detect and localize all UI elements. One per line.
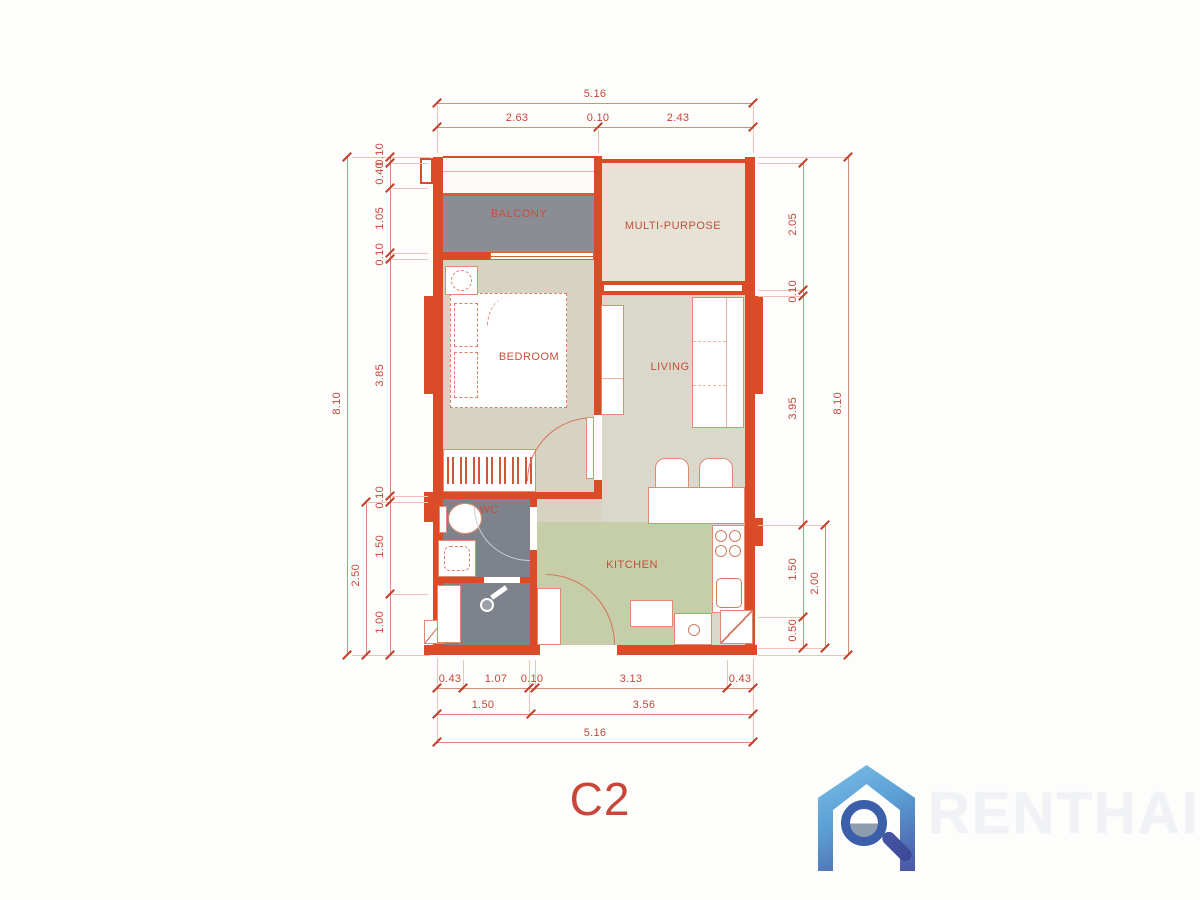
dim-label: 0.43 bbox=[723, 673, 757, 685]
stove-burner bbox=[715, 530, 727, 542]
wall-multi-top bbox=[601, 159, 745, 163]
extension-line bbox=[392, 259, 428, 260]
hanger-icon bbox=[512, 457, 519, 484]
sofa-cushion-line bbox=[693, 385, 726, 386]
wall-balcony-multi-divider bbox=[594, 156, 602, 295]
extension-line bbox=[437, 105, 438, 153]
dimension-line bbox=[437, 714, 753, 715]
dimension-line bbox=[437, 742, 753, 743]
shower-door-slot bbox=[484, 577, 520, 583]
hanger-icon bbox=[499, 457, 506, 484]
ac-ledge bbox=[720, 610, 753, 644]
room-label-bedroom: BEDROOM bbox=[479, 351, 579, 363]
dim-label: 0.40 bbox=[374, 162, 386, 185]
room-label-kitchen: KITCHEN bbox=[582, 559, 682, 571]
dim-label: 0.10 bbox=[581, 112, 615, 124]
stove-burner bbox=[715, 545, 727, 557]
dim-label: 8.10 bbox=[331, 392, 343, 415]
kitchen-cabinet-bottom bbox=[674, 613, 712, 645]
dining-table bbox=[648, 487, 745, 524]
logo-magnifier-icon bbox=[841, 800, 887, 846]
extension-line bbox=[753, 105, 754, 153]
extension-line bbox=[392, 496, 428, 497]
dimension-line bbox=[366, 502, 367, 655]
hanger-icon bbox=[473, 457, 480, 484]
dim-label: 1.50 bbox=[787, 558, 799, 581]
dim-label: 0.10 bbox=[374, 243, 386, 266]
pillow bbox=[454, 303, 478, 347]
stove-burner bbox=[729, 545, 741, 557]
wall-bedroom-bottom bbox=[433, 492, 602, 499]
dim-label: 8.10 bbox=[832, 392, 844, 415]
dim-label: 1.50 bbox=[466, 699, 500, 711]
room-label-multi-purpose: MULTI-PURPOSE bbox=[603, 220, 743, 232]
extension-line bbox=[598, 130, 599, 153]
wall-bottom-left bbox=[424, 645, 540, 655]
wall-left-column-upper bbox=[424, 296, 433, 394]
wall-top-notch bbox=[420, 158, 433, 184]
kitchen-sink bbox=[716, 578, 742, 608]
hanger-icon bbox=[460, 457, 467, 484]
extension-line bbox=[758, 163, 801, 164]
extension-line bbox=[392, 594, 428, 595]
dimension-line bbox=[390, 157, 391, 655]
extension-line bbox=[392, 163, 428, 164]
dimension-line bbox=[848, 157, 849, 655]
dim-label: 0.10 bbox=[787, 280, 799, 303]
hanger-icon bbox=[447, 457, 454, 484]
balcony-railing bbox=[443, 156, 595, 196]
extension-line bbox=[437, 658, 438, 744]
dim-label: 5.16 bbox=[578, 88, 612, 100]
dim-label: 1.07 bbox=[479, 673, 513, 685]
dim-label: 2.43 bbox=[661, 112, 695, 124]
wall-bottom-right bbox=[617, 645, 757, 655]
extension-line bbox=[758, 525, 823, 526]
sink-basin bbox=[444, 546, 470, 571]
extension-line bbox=[392, 253, 428, 254]
vanity-sink bbox=[438, 540, 476, 577]
balcony-floor bbox=[443, 196, 595, 252]
multi-sliding-window bbox=[604, 285, 742, 291]
dim-label: 1.50 bbox=[374, 535, 386, 558]
wall-right-column-lower bbox=[755, 518, 763, 546]
balcony-sliding-door bbox=[490, 252, 594, 260]
tv-cabinet-shelf-line bbox=[602, 378, 623, 379]
extension-line bbox=[753, 658, 754, 744]
dimension-line bbox=[347, 157, 348, 655]
extension-line bbox=[758, 617, 801, 618]
dim-label: 3.85 bbox=[374, 364, 386, 387]
shower-head-icon bbox=[480, 598, 494, 612]
toilet-tank bbox=[439, 506, 447, 533]
room-label-living: LIVING bbox=[620, 361, 720, 373]
pillow bbox=[454, 352, 478, 398]
extension-line bbox=[758, 655, 846, 656]
dimension-line bbox=[825, 525, 826, 648]
dim-label: 0.43 bbox=[433, 673, 467, 685]
washer-cabinet bbox=[437, 585, 461, 643]
unit-label: C2 bbox=[555, 772, 645, 826]
sofa-cushion-line bbox=[693, 341, 726, 342]
sliding-door-line bbox=[491, 256, 593, 257]
dimension-line bbox=[437, 103, 753, 104]
logo-brand-text: RENTHAI bbox=[928, 780, 1200, 847]
dim-label: 5.16 bbox=[578, 727, 612, 739]
dim-label: 3.13 bbox=[614, 673, 648, 685]
dim-label: 0.10 bbox=[515, 673, 549, 685]
dim-label: 3.56 bbox=[627, 699, 661, 711]
dimension-line bbox=[803, 163, 804, 648]
dim-label: 3.95 bbox=[787, 397, 799, 420]
hanger-icon bbox=[486, 457, 493, 484]
railing-line bbox=[443, 171, 595, 172]
kitchen-counter-bottom bbox=[630, 600, 673, 627]
wall-right bbox=[745, 157, 755, 655]
renthai-logo: RENTHAI bbox=[815, 760, 1195, 880]
tv-cabinet bbox=[601, 305, 624, 415]
wall-right-column-upper bbox=[755, 296, 763, 394]
dim-label: 1.00 bbox=[374, 611, 386, 634]
dining-chair bbox=[655, 458, 689, 489]
extension-line bbox=[758, 157, 846, 158]
wardrobe bbox=[443, 449, 536, 492]
dining-chair bbox=[699, 458, 733, 489]
dim-label: 2.63 bbox=[500, 112, 534, 124]
room-label-balcony: BALCONY bbox=[469, 208, 569, 220]
sofa-back-line bbox=[726, 298, 727, 427]
condenser-fan-circle bbox=[451, 270, 472, 291]
wall-shower-kitchen bbox=[530, 583, 537, 645]
stove-burner bbox=[729, 530, 741, 542]
wall-wc-right-upper bbox=[530, 499, 537, 507]
bedroom-door-leaf bbox=[586, 417, 594, 479]
dim-label: 0.10 bbox=[374, 486, 386, 509]
extension-line bbox=[392, 188, 428, 189]
dim-label: 2.00 bbox=[809, 572, 821, 595]
dim-label: 2.50 bbox=[350, 564, 362, 587]
condenser-unit bbox=[445, 266, 478, 295]
dimension-line bbox=[437, 688, 753, 689]
dim-label: 1.05 bbox=[374, 207, 386, 230]
dim-label: 0.50 bbox=[787, 619, 799, 642]
cabinet-knob-circle bbox=[688, 624, 700, 636]
room-label-wc: WC bbox=[464, 504, 514, 516]
dim-label: 2.05 bbox=[787, 213, 799, 236]
floorplan-canvas: BALCONY MULTI-PURPOSE BEDROOM LIVING WC … bbox=[0, 0, 1200, 900]
wall-balcony-bottom bbox=[433, 252, 490, 260]
extension-line bbox=[758, 648, 823, 649]
